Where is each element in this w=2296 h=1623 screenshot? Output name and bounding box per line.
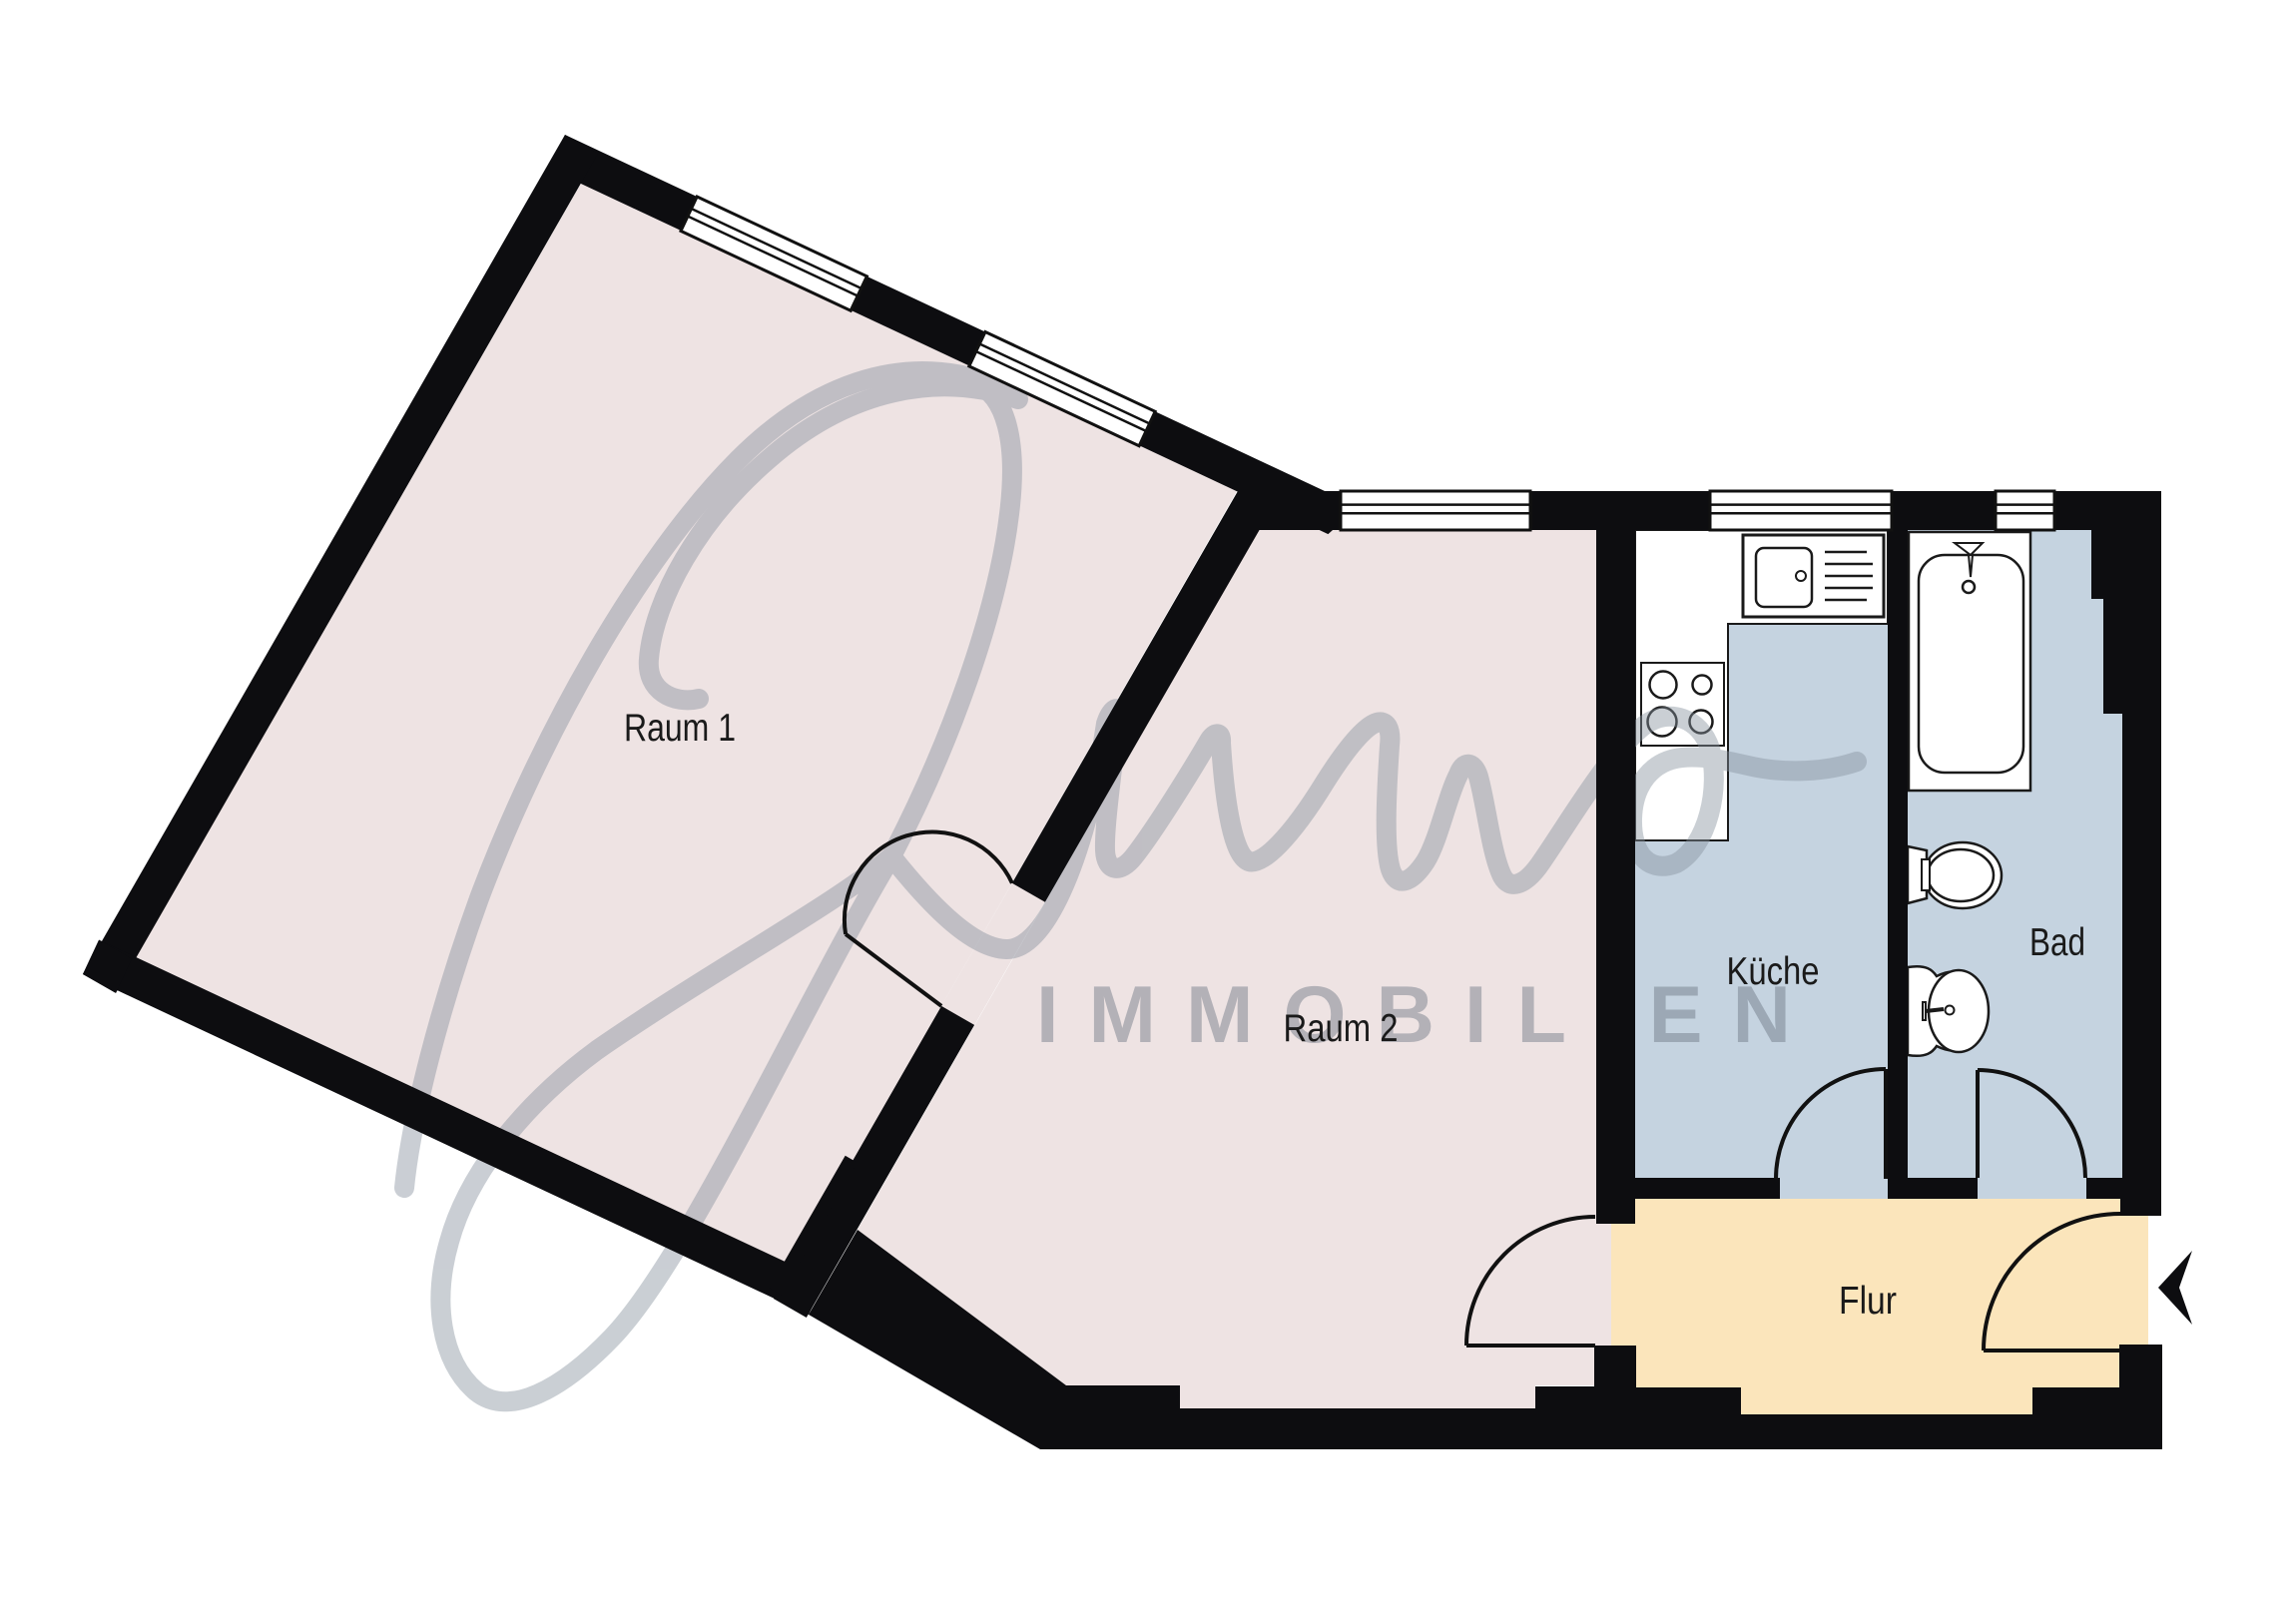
svg-text:Raum 2: Raum 2 — [1284, 1007, 1399, 1050]
svg-text:Raum 1: Raum 1 — [624, 707, 736, 750]
svg-text:Bad: Bad — [2029, 921, 2085, 964]
svg-text:Flur: Flur — [1839, 1280, 1897, 1323]
svg-text:IMMOBILIEN: IMMOBILIEN — [1036, 970, 1821, 1060]
svg-text:Küche: Küche — [1727, 950, 1820, 993]
